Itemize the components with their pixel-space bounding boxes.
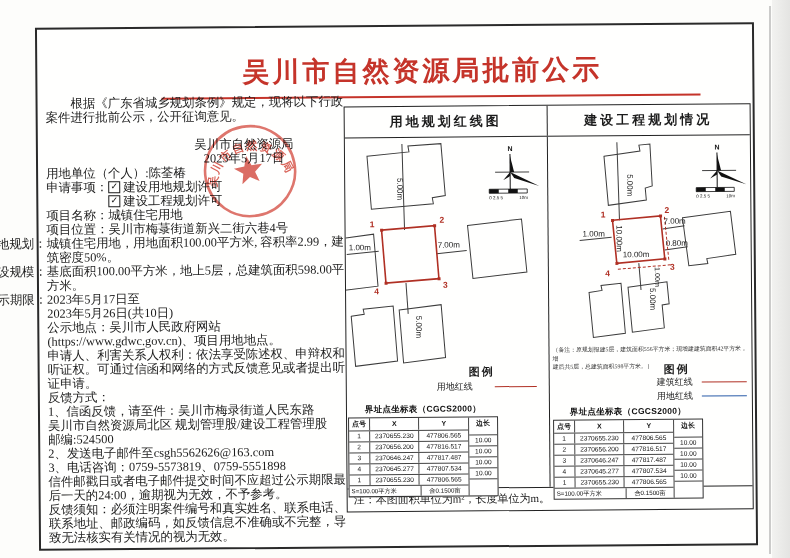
coord-row: 32370646.247477817.487 [349,451,468,463]
page-border-frame: 吴川市自然资源局批前公示 根据《广东省城乡规划条例》规定，现将以下行政案件进行批… [35,22,758,551]
panel-headers: 用地规划红线图 建设工程规划情况 [345,104,750,138]
construction-remark: （备注：原规划报建5层，建筑面积556平方米；现增建建筑面积42平方米，增 建后… [552,344,749,371]
coord-row: 42370645.277477807.534 [554,465,673,477]
svg-text:0 2.5 5: 0 2.5 5 [696,194,710,199]
svg-text:10m: 10m [726,193,735,198]
svg-text:3: 3 [670,262,675,272]
panel-construction: 1 2 3 4 5.00m 10.00m 1.00m 7.00m 0.80m 1… [547,135,752,487]
feedback-line: 吴川市自然资源局北区 规划管理股/建设工程管理股 [48,416,350,432]
svg-text:5.00m: 5.00m [414,316,423,339]
coord-row: 32370646.247477817.487 [554,454,673,466]
coord-area-row: S=100.00平方米合0.1500亩 [350,484,469,496]
north-compass-icon: N [702,143,746,191]
coord-area-row: S=100.00平方米合0.1500亩 [555,487,674,499]
feedback-line: 信件邮戳日或者电子邮件提交时间不应超过公示期限最后一天的24:00，逾期视为无效… [48,472,350,502]
north-compass-icon: N [495,145,539,193]
issuer-date: 2023年5月17日 [192,151,296,166]
field-land-planning: 用地规划：城镇住宅用地，用地面积100.00平方米, 容积率2.99，建筑密度5… [47,234,349,264]
legend-title: 图例 [664,362,690,377]
legend-land-redline-label: 用地红线 [437,380,473,393]
checkbox-checked-icon: ✓ [108,181,120,193]
field-build-scale: 建设规模：基底面积100.00平方米，地上5层，总建筑面积598.00平方米。 [47,262,349,292]
svg-text:1: 1 [370,219,375,229]
svg-text:2: 2 [439,215,444,225]
coord-row: 12370655.230477806.565 [349,429,468,441]
svg-text:10.00m: 10.00m [623,250,650,259]
notice-body: 根据《广东省城乡规划条例》规定，现将以下行政案件进行批前公示，公开征询意见。 吴… [45,94,351,544]
checkbox-checked-icon: ✓ [108,195,120,207]
apply-item-1: ✓ 建设用地规划许可 [108,179,222,194]
svg-text:1.00m: 1.00m [583,229,606,238]
svg-text:7.00m: 7.00m [663,217,686,226]
coordinate-table: 界址点坐标表（CGCS2000） 点号XY 12370655.230477806… [348,403,499,497]
rights-paragraph: 申请人、利害关系人权利：依法享受陈述权、申辩权和听证权。可通过信函和网络的方式反… [47,346,349,390]
svg-text:5.00m: 5.00m [648,288,657,311]
svg-text:2: 2 [664,205,669,215]
svg-text:0.80m: 0.80m [666,239,689,248]
svg-text:10m: 10m [519,195,528,200]
svg-text:4: 4 [605,268,610,278]
scale-bar: 0 2.5 5 10m [489,189,528,200]
planning-panels-table: 用地规划红线图 建设工程规划情况 [344,103,754,512]
scale-bar: 0 2.5 5 10m [696,187,735,198]
page-title: 吴川市自然资源局批前公示 [97,50,747,91]
feedback-line: 反馈须知：必须注明案件编号和真实姓名、联系电话、联系地址、邮政编码，如反馈信息不… [49,500,351,544]
svg-text:1: 1 [601,209,606,219]
legend-title: 图例 [469,364,495,379]
coord-row: 22370656.200477816.517 [554,443,673,455]
issuer-block: 吴川市自然资源局 2023年5月17日 [192,137,296,166]
paper-edge-shade [772,0,790,558]
svg-text:10.00m: 10.00m [615,225,624,252]
svg-text:0 2.5 5: 0 2.5 5 [489,195,503,200]
svg-text:N: N [507,145,512,152]
svg-text:5.00m: 5.00m [395,178,404,201]
coord-row: 42370645.277477807.534 [349,462,468,474]
panel-header-redline-map: 用地规划红线图 [345,106,547,138]
legend-building-redline-label: 建筑红线 [657,376,693,389]
coord-row: 12370655.230477806.565 [349,473,468,485]
panel-redline-map: 1 2 3 4 5.00m 1.00m 7.00m 5.00m N [345,137,550,489]
coord-row: 22370656.200477816.517 [349,440,468,452]
intro-paragraph: 根据《广东省城乡规划条例》规定，现将以下行政案件进行批前公示，公开征询意见。 [45,94,347,124]
scanned-notice-page: 吴川市自然资源局批前公示 根据《广东省城乡规划条例》规定，现将以下行政案件进行批… [0,0,790,558]
coord-row: 12370655.230477806.565 [554,432,673,444]
svg-text:4: 4 [374,286,379,296]
siteplan-redline-map: 1 2 3 4 5.00m 1.00m 7.00m 5.00m N [345,137,549,404]
svg-text:1.00m: 1.00m [653,267,662,287]
coordinate-table: 界址点坐标表（CGCS2000） 点号XY 12370655.230477806… [553,406,704,500]
panel-header-construction: 建设工程规划情况 [547,104,749,136]
svg-text:3: 3 [443,280,448,290]
svg-text:5.00m: 5.00m [625,174,634,197]
paper-edge-line [769,6,771,554]
legend-land-redline-label: 用地红线 [657,390,693,403]
svg-text:1.00m: 1.00m [349,243,372,252]
svg-text:N: N [714,143,719,150]
field-apply: 申请事项： ✓ 建设用地规划许可 ✓ 建设工程规划许可 [46,178,348,208]
coord-row: 12370655.230477806.565 [554,476,673,488]
field-notice-period: 公示期限：2023年5月17日至2023年5月26日(共10日) [47,290,349,320]
issuer-name: 吴川市自然资源局 [192,137,296,152]
svg-text:7.00m: 7.00m [438,240,461,249]
apply-item-2: ✓ 建设工程规划许可 [108,193,222,208]
